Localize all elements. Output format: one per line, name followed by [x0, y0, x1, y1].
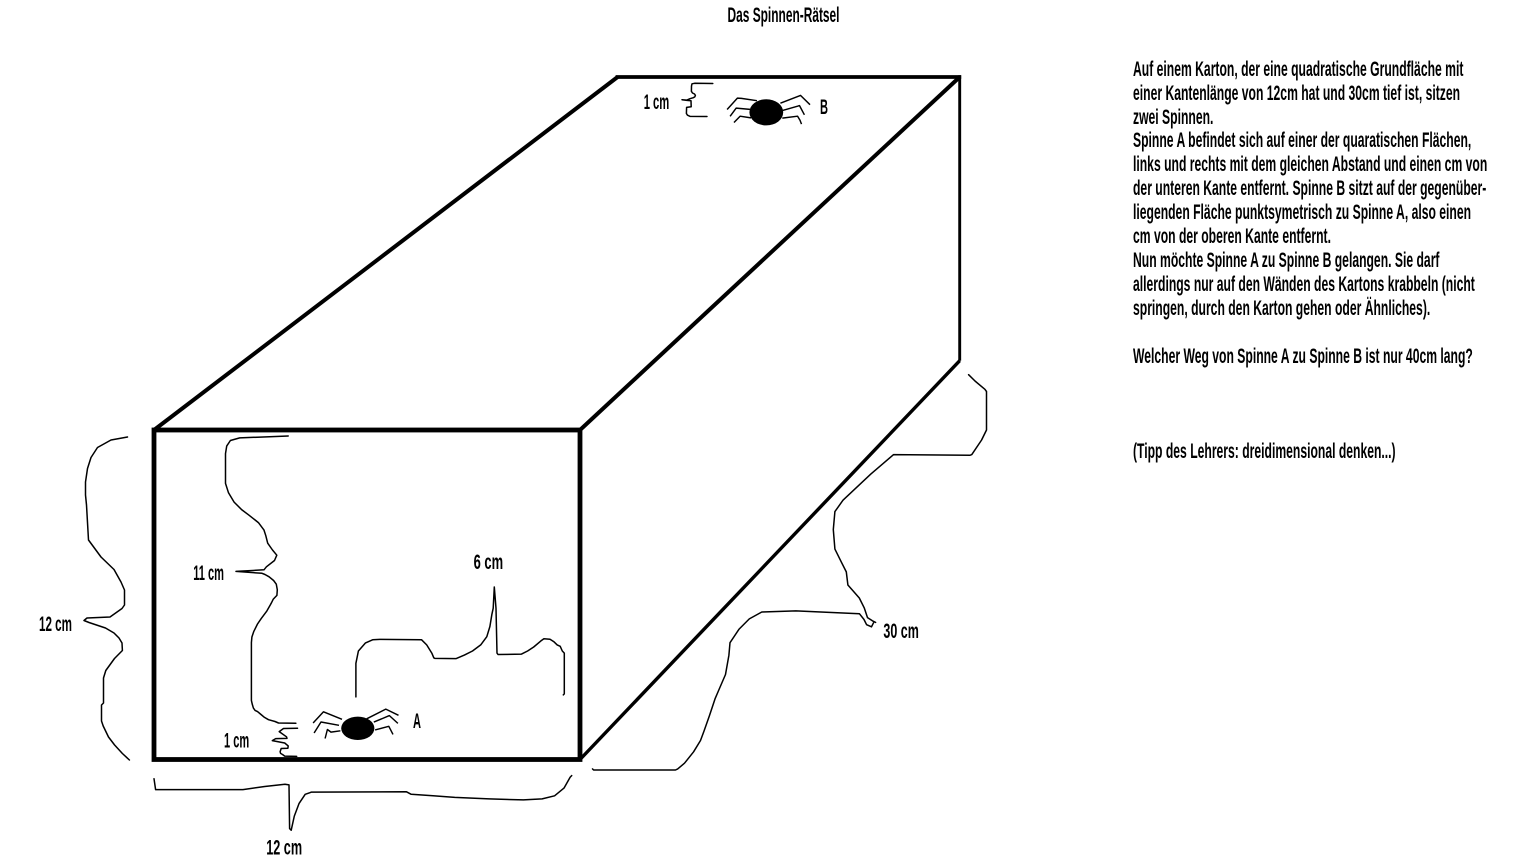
svg-text:11 cm: 11 cm [193, 562, 224, 585]
svg-text:12 cm: 12 cm [266, 837, 302, 858]
svg-text:1 cm: 1 cm [644, 91, 670, 114]
svg-text:30 cm: 30 cm [883, 620, 918, 643]
svg-text:6 cm: 6 cm [474, 551, 504, 574]
svg-text:Das Spinnen-Rätsel: Das Spinnen-Rätsel [728, 4, 840, 27]
svg-text:1 cm: 1 cm [224, 729, 249, 752]
svg-text:12 cm: 12 cm [39, 613, 72, 636]
svg-text:A: A [413, 710, 421, 733]
svg-text:B: B [820, 96, 828, 119]
